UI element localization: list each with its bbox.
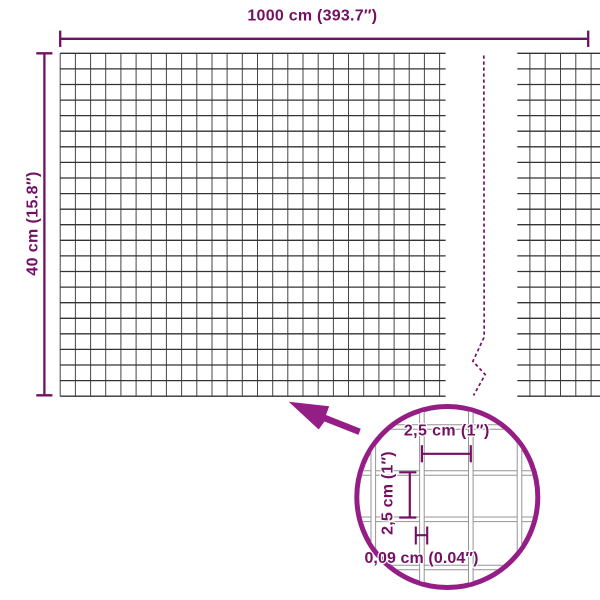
svg-text:0,09 cm (0.04″): 0,09 cm (0.04″) <box>364 550 478 567</box>
svg-text:2,5 cm (1″): 2,5 cm (1″) <box>404 423 490 440</box>
svg-text:2,5 cm (1″): 2,5 cm (1″) <box>380 451 397 535</box>
svg-text:1000 cm (393.7″): 1000 cm (393.7″) <box>247 7 377 24</box>
svg-text:40 cm (15.8″): 40 cm (15.8″) <box>25 171 42 275</box>
